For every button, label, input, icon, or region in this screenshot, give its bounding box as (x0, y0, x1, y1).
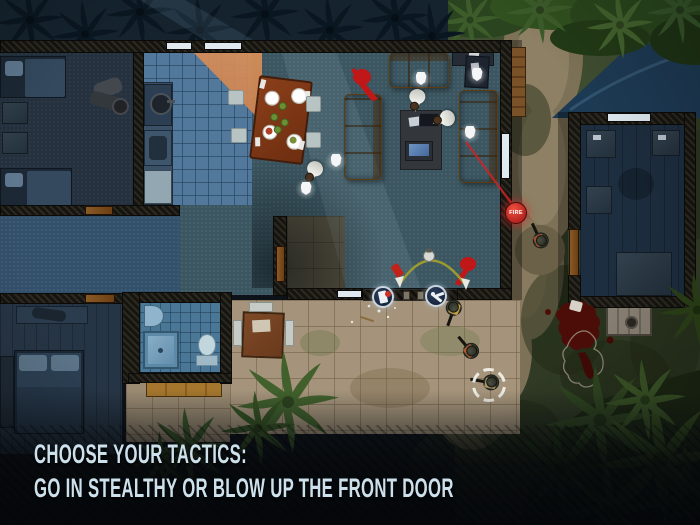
pick-dot (431, 292, 435, 296)
pick-bar2 (436, 292, 444, 297)
breach-charge-glyph (385, 291, 391, 297)
breach-charge-icon[interactable] (372, 286, 394, 308)
fire-marker[interactable]: FIRE (505, 202, 527, 224)
caption-line2: GO IN STEALTHY OR BLOW UP THE FRONT DOOR (34, 475, 454, 502)
arc-arrowhead (461, 278, 470, 290)
caption-line1: CHOOSE YOUR TACTICS: (34, 441, 247, 468)
shield-icon (465, 126, 476, 139)
game-viewport: FIRE CHOOSE YOUR TACTICS: GO IN STEALTHY… (0, 0, 700, 525)
lockpick-icon[interactable] (425, 285, 447, 307)
shield-icon (331, 154, 342, 167)
threat-glow (459, 122, 481, 144)
threat-glow (410, 68, 432, 90)
laser-line-core (466, 142, 512, 204)
threat-glow (466, 64, 488, 86)
shield-icon (416, 72, 427, 85)
threat-glow (325, 150, 347, 172)
fire-marker-label: FIRE (509, 210, 523, 216)
stick-debris (360, 316, 374, 322)
threat-glow (295, 178, 317, 200)
spray-marker (352, 69, 379, 102)
breach-charge-placed[interactable] (390, 263, 404, 278)
shield-icon (472, 68, 483, 81)
grenade-pin (427, 249, 432, 253)
shield-icon (301, 182, 312, 195)
